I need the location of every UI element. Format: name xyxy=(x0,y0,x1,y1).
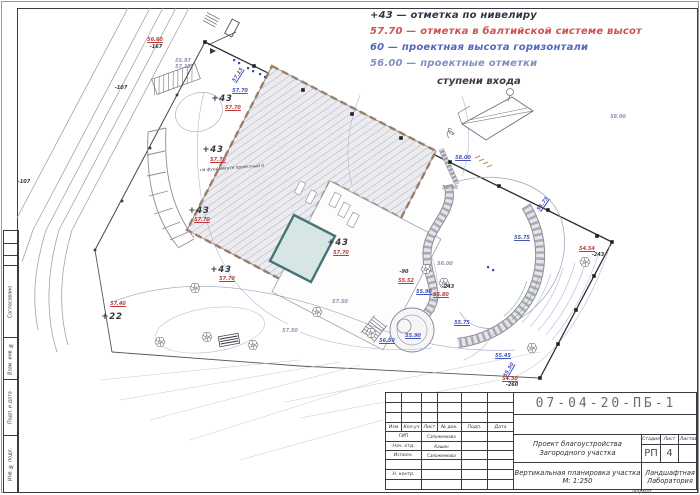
elevation-mark: 55.45 xyxy=(495,353,511,359)
tb-sheets-value xyxy=(679,445,698,463)
tree-symbol xyxy=(202,332,212,341)
tree-symbol xyxy=(421,264,431,273)
tb-col-podp: Подп. xyxy=(462,423,488,432)
circular-patio xyxy=(390,308,434,352)
elevation-mark: 57.70 xyxy=(194,217,210,223)
elevation-mark: 56.00 xyxy=(437,261,453,267)
elevation-mark: 58.00 xyxy=(455,155,471,161)
tree-symbol xyxy=(312,307,322,316)
elevation-mark: -90 xyxy=(399,269,408,275)
tb-sheet-label: Лист xyxy=(661,435,679,445)
entrance-steps-sketch xyxy=(447,89,533,141)
tb-col-izm: Изм xyxy=(386,423,402,432)
tree-symbol xyxy=(527,343,537,352)
elevation-mark: 58.00 xyxy=(610,114,626,120)
tb-company: Ландшафтная Лаборатория xyxy=(642,463,698,491)
elevation-mark: 56.60 xyxy=(147,37,163,43)
tb-name-gip: Сапоженкова xyxy=(422,432,462,442)
elevation-mark: -243 xyxy=(592,252,605,258)
tree-symbol xyxy=(580,257,590,266)
tb-role-nkontr: Н. контр. xyxy=(386,470,422,480)
elevation-mark: 55.52 xyxy=(398,278,414,284)
elevation-mark: 58.00 xyxy=(442,185,458,191)
tb-role-ispoln: Исполн. xyxy=(386,451,422,460)
elevation-mark: +43 xyxy=(327,238,348,248)
tree-symbol xyxy=(155,337,165,346)
tb-name-nkontr xyxy=(422,470,462,480)
elevation-mark: 57.40 xyxy=(110,301,126,307)
elevation-mark: 57.70 xyxy=(225,105,241,111)
elevation-mark: -167 xyxy=(150,44,163,50)
elevation-mark: 55.75 xyxy=(454,320,470,326)
elevation-mark: 57.15 xyxy=(175,64,191,70)
elevation-mark: 57.50 xyxy=(282,328,298,334)
title-block: Изм Кол.уч Лист № док. Подп. Дата ГИП Са… xyxy=(385,392,697,490)
elevation-mark: 57.70 xyxy=(219,276,235,282)
bench xyxy=(218,333,239,346)
elevation-mark: +43 xyxy=(210,265,231,275)
tb-col-list: Лист xyxy=(422,423,438,432)
elevation-mark: 57.50 xyxy=(332,299,348,305)
elevation-mark: 57.70 xyxy=(333,250,349,256)
tb-col-data: Дата xyxy=(488,423,514,432)
tb-project-title: Проект благоустройства Загородного участ… xyxy=(514,435,642,463)
tree-symbol xyxy=(190,283,200,292)
format-label: Формат xyxy=(612,490,672,495)
tb-sheet-title: Вертикальная планировка участка М: 1:250 xyxy=(514,463,642,491)
elevation-mark: -107 xyxy=(18,179,31,185)
elevation-mark: 57.70 xyxy=(210,157,226,163)
elevation-mark: 55.90 xyxy=(405,333,421,339)
tb-stage-label: Стадия xyxy=(642,435,661,445)
tb-sheets-label: Листов xyxy=(679,435,698,445)
tree-symbol xyxy=(366,328,376,337)
elevation-mark: 55.90 xyxy=(416,289,432,295)
tb-col-doc: № док. xyxy=(438,423,462,432)
elevation-mark: 56.50 xyxy=(379,338,395,344)
gate xyxy=(203,13,239,54)
elevation-mark: -260 xyxy=(506,382,519,388)
tb-col-koluch: Кол.уч xyxy=(402,423,422,432)
elevation-mark: +43 xyxy=(211,94,232,104)
elevation-mark: -243 xyxy=(442,284,455,290)
elevation-mark: +22 xyxy=(101,312,122,322)
drawing-sheet: { "legend": { "items": [ {"text": "+43 —… xyxy=(0,0,700,494)
tb-name-nach: Кашин xyxy=(422,442,462,451)
elevation-mark: +43 xyxy=(188,206,209,216)
tb-role-gip: ГИП xyxy=(386,432,422,442)
elevation-mark: -107 xyxy=(115,85,128,91)
tb-doc-number: 07-04-20-ПБ-1 xyxy=(514,393,698,415)
tb-stage-value: РП xyxy=(642,445,661,463)
elevation-mark: 55.75 xyxy=(514,235,530,241)
tb-role-nach: Нач. отд. xyxy=(386,442,422,451)
elevation-mark: +43 xyxy=(202,145,223,155)
elevation-mark: 57.70 xyxy=(232,88,248,94)
stone-path-east xyxy=(458,206,540,343)
tb-name-ispoln: Сапоженкова xyxy=(422,451,462,460)
tree-symbol xyxy=(248,340,258,349)
tb-sheet-value: 4 xyxy=(661,445,679,463)
elevation-mark: 55.80 xyxy=(433,292,449,298)
